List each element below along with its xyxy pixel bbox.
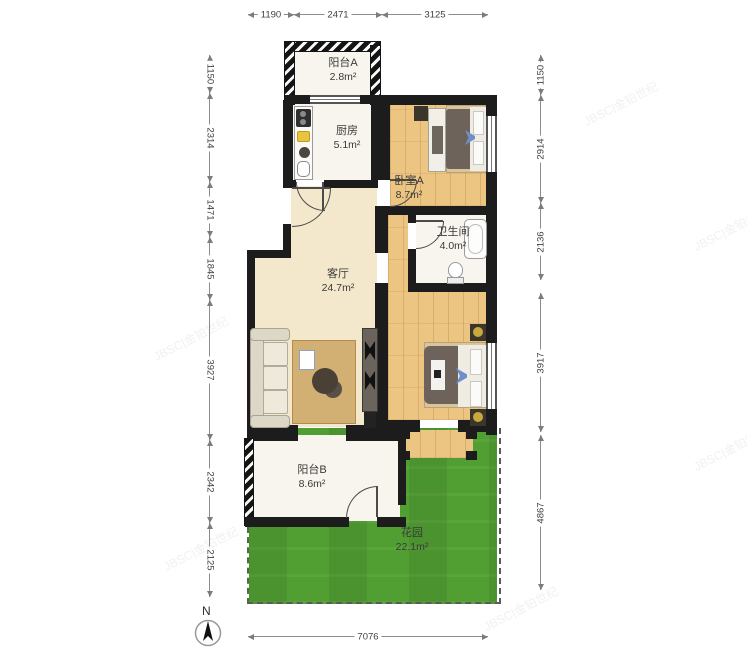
coffee-table-icon <box>312 368 338 394</box>
garden-name: 花园 <box>401 527 423 541</box>
balcony-a-name: 阳台A <box>328 57 357 71</box>
hallway-nook-floor <box>388 215 408 292</box>
bedroom-a-area: 8.7m² <box>396 189 423 202</box>
dimension-value: 3917 <box>536 349 547 376</box>
sink-basin-icon <box>299 147 310 158</box>
dimension-value: 2914 <box>536 135 547 162</box>
sofa-cushion-3 <box>263 390 288 414</box>
kitchen-area: 5.1m² <box>334 139 361 152</box>
dimension-value: 3927 <box>205 356 216 383</box>
rug-paper-card <box>299 350 315 370</box>
bedroom-a-pillow-1 <box>473 111 484 135</box>
kitchen-name: 厨房 <box>336 125 358 139</box>
dimension-right-5: 4867 <box>540 435 541 590</box>
wall-balcony-b-top-right <box>346 425 406 441</box>
wall-kitchen-left <box>283 100 293 188</box>
room-label-balcony-b: 阳台B 8.6m² <box>297 464 326 491</box>
bedroom-b-nightstand-top-knob <box>473 327 483 337</box>
bedroom-a-duvet <box>446 109 470 169</box>
toilet-tank <box>447 277 464 284</box>
dimension-top-1: 1190 <box>248 14 294 15</box>
toilet-icon <box>448 262 463 278</box>
dimension-right-1: 1150 <box>540 55 541 95</box>
garden-area: 22.1m² <box>396 541 429 554</box>
wall-kitchen-bedroom-a <box>371 104 390 180</box>
dimension-value: 2471 <box>324 10 351 21</box>
dimension-left-3: 1471 <box>209 182 210 237</box>
balcony-a-area: 2.8m² <box>330 71 357 84</box>
kitchen-balcony-window <box>310 95 360 104</box>
dimension-value: 2125 <box>205 546 216 573</box>
dimension-value: 2342 <box>205 468 216 495</box>
bedroom-b-window <box>486 343 497 409</box>
dimension-left-5: 3927 <box>209 300 210 440</box>
dimension-left-1: 1150 <box>209 55 210 93</box>
room-label-bathroom: 卫生间 4.0m² <box>437 226 470 253</box>
room-label-bedroom-a: 卧室A 8.7m² <box>394 175 423 202</box>
tv-cabinet-box <box>364 412 376 428</box>
stove-burner-2 <box>300 119 306 125</box>
wall-nook-west-upper <box>375 215 388 253</box>
bedroom-b-pillow-1 <box>470 349 482 375</box>
sofa-cushion-2 <box>263 366 288 390</box>
bedroom-a-window <box>486 116 497 172</box>
bedroom-a-nightstand <box>414 106 428 121</box>
dimension-right-4: 3917 <box>540 293 541 432</box>
dimension-value: 1190 <box>258 10 284 21</box>
dimension-value: 2136 <box>536 228 547 255</box>
sofa-arm-top <box>250 328 290 341</box>
stove-burner-1 <box>300 111 306 117</box>
watermark: JBSC|金铂世纪 <box>161 522 242 574</box>
kitchen-sink-icon <box>297 161 310 177</box>
bedroom-a-name: 卧室A <box>394 175 423 189</box>
dimension-bottom-1: 7076 <box>248 636 488 637</box>
watermark: JBSC|金铂世纪 <box>581 77 662 129</box>
dimension-right-3: 2136 <box>540 203 541 280</box>
dimension-left-7: 2125 <box>209 523 210 597</box>
dimension-top-3: 3125 <box>382 14 488 15</box>
stoop-wall-stub-ne <box>466 426 477 439</box>
wall-bathroom-left-stub <box>408 215 416 223</box>
watermark: JBSC|金铂世纪 <box>691 202 747 254</box>
room-label-living-room: 客厅 24.7m² <box>322 268 355 295</box>
sofa-back <box>250 328 264 428</box>
room-label-balcony-a: 阳台A 2.8m² <box>328 57 357 84</box>
balcony-b-window-wall-left <box>245 439 253 525</box>
balcony-b-area: 8.6m² <box>299 478 326 491</box>
bathroom-name: 卫生间 <box>437 226 470 240</box>
balcony-a-window-wall-top <box>285 42 380 51</box>
sofa-arm-bottom <box>250 415 290 428</box>
wall-balcony-b-bottom <box>245 517 349 527</box>
garden-boundary-bottom <box>247 602 501 604</box>
bathroom-area: 4.0m² <box>440 240 467 253</box>
bathroom-door-leaf <box>416 220 443 222</box>
watermark: JBSC|金铂世纪 <box>691 422 747 474</box>
stoop-wall-stub-se <box>466 451 477 460</box>
north-arrow-icon <box>193 618 223 648</box>
dimension-left-4: 1845 <box>209 237 210 300</box>
bedroom-a-wardrobe-box <box>432 126 443 154</box>
garden-boundary-left <box>247 527 249 604</box>
dimension-value: 7076 <box>354 632 381 643</box>
living-room-name: 客厅 <box>327 268 349 282</box>
bathtub-inner <box>468 224 483 254</box>
living-room-area: 24.7m² <box>322 282 355 295</box>
dimension-top-2: 2471 <box>294 14 382 15</box>
room-label-garden: 花园 22.1m² <box>396 527 429 554</box>
dimension-value: 1150 <box>205 61 216 87</box>
bedroom-b-nightstand-bottom-knob <box>473 412 483 422</box>
dimension-right-2: 2914 <box>540 95 541 203</box>
wall-balcony-b-bottom-east <box>377 517 406 527</box>
cutting-board-icon <box>297 131 310 142</box>
wall-kitchen-bottom-right <box>324 180 378 188</box>
kitchen-door-leaf <box>322 182 324 210</box>
wall-bedroom-a-bottom <box>375 206 497 215</box>
tv-panel <box>362 328 378 412</box>
dimension-value: 1471 <box>205 196 216 223</box>
room-label-kitchen: 厨房 5.1m² <box>334 125 361 152</box>
wall-bathroom-bottom <box>408 283 497 292</box>
dimension-value: 1150 <box>536 62 547 88</box>
watermark: JBSC|金铂世纪 <box>151 312 232 364</box>
dimension-value: 3125 <box>421 10 448 21</box>
stoop-wall-stub-nw <box>399 426 410 439</box>
balcony-b-name: 阳台B <box>297 464 326 478</box>
bedroom-b-pillow-2 <box>470 381 482 407</box>
bedroom-b-duvet-panel-square <box>434 370 441 378</box>
dimension-left-6: 2342 <box>209 440 210 523</box>
floor-plan: 阳台A 2.8m² 厨房 5.1m² 卧室A 8.7m² 卫生间 4.0m² 客… <box>0 0 747 662</box>
north-label: N <box>202 604 211 618</box>
bedroom-a-pillow-2 <box>473 141 484 165</box>
dimension-left-2: 2314 <box>209 93 210 182</box>
sofa-cushion-1 <box>263 342 288 366</box>
dimension-value: 1845 <box>205 255 216 282</box>
stoop-wall-stub-sw <box>399 451 410 460</box>
dimension-value: 2314 <box>205 124 216 151</box>
balcony-b-garden-door-leaf <box>376 486 378 517</box>
garden-boundary-right <box>499 428 501 604</box>
dimension-value: 4867 <box>536 499 547 526</box>
garden-stoop-floor <box>405 430 473 458</box>
